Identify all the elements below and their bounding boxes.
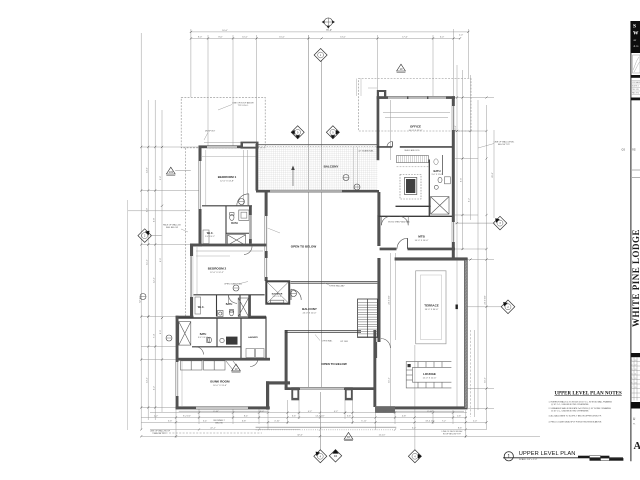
svg-text:1'-6": 1'-6" [457, 416, 462, 418]
svg-text:@ 16" O.C., UNLESS NOTED OTHER: @ 16" O.C., UNLESS NOTED OTHERWISE. [551, 404, 589, 406]
svg-text:9'-6": 9'-6" [461, 178, 463, 183]
svg-text:05: 05 [635, 387, 637, 389]
svg-text:4'-10": 4'-10" [274, 420, 280, 422]
svg-text:2'-4": 2'-4" [383, 411, 388, 413]
svg-text:5'-11": 5'-11" [361, 420, 367, 422]
svg-text:13'-0": 13'-0" [340, 36, 346, 38]
svg-text:24'-0 3/4": 24'-0 3/4" [389, 295, 391, 304]
svg-text:18'-0" X 34'-6": 18'-0" X 34'-6" [425, 309, 439, 311]
svg-text:3. ALL BALCONIES TO SLOPE 2": 3. ALL BALCONIES TO SLOPE 2" BELOW UPPER… [549, 414, 603, 417]
svg-text:W.I.C.: W.I.C. [207, 232, 214, 235]
svg-text:UPPER LEVEL PLAN NOTES: UPPER LEVEL PLAN NOTES [555, 392, 623, 397]
svg-text:OFFICE: OFFICE [410, 125, 421, 129]
svg-text:2: 2 [632, 364, 633, 366]
svg-text:BUNK ROOM: BUNK ROOM [210, 380, 230, 384]
svg-text:11'-2": 11'-2" [146, 259, 148, 265]
svg-text:13'-2": 13'-2" [146, 377, 148, 383]
svg-text:3'-6": 3'-6" [347, 416, 352, 418]
svg-text:2'-2": 2'-2" [154, 416, 159, 418]
svg-text:12'-6" X 12'-2": 12'-6" X 12'-2" [210, 272, 224, 274]
svg-text:7'-2": 7'-2" [442, 420, 447, 422]
svg-text:& co: & co [634, 45, 639, 48]
svg-text:7'-4": 7'-4" [153, 334, 155, 339]
svg-text:3: 3 [632, 369, 633, 371]
svg-text:16'-2": 16'-2" [485, 377, 487, 383]
svg-text:05: 05 [635, 360, 637, 362]
svg-text:3'-2": 3'-2" [412, 428, 417, 430]
svg-text:12'-0" X 12'-6": 12'-0" X 12'-6" [423, 377, 437, 379]
svg-text:01: 01 [635, 378, 637, 380]
svg-text:LOUNGE: LOUNGE [423, 372, 436, 376]
svg-text:17'-6": 17'-6" [402, 36, 408, 38]
svg-text:BEDROOM 1: BEDROOM 1 [218, 175, 237, 179]
svg-text:5'-4": 5'-4" [203, 420, 208, 422]
svg-text:9'-0": 9'-0" [160, 258, 162, 263]
svg-text:OPEN RAIL: OPEN RAIL [322, 340, 334, 343]
svg-text:UP 16R: UP 16R [340, 341, 348, 343]
svg-text:OPEN TO BELOW: OPEN TO BELOW [321, 362, 347, 366]
svg-text:09: 09 [635, 369, 637, 371]
svg-text:TEL 970: TEL 970 [632, 89, 639, 91]
svg-text:76'-0": 76'-0" [326, 29, 332, 32]
svg-text:07: 07 [635, 364, 637, 366]
svg-text:SCALE: 1/4" = 1'-0": SCALE: 1/4" = 1'-0" [519, 458, 537, 461]
svg-text:8'-0": 8'-0" [198, 36, 203, 38]
svg-text:6'-2": 6'-2" [469, 198, 471, 203]
svg-text:8'-4": 8'-4" [244, 416, 249, 418]
svg-text:5'-3": 5'-3" [168, 420, 173, 422]
svg-text:8'-0" X 6'-4": 8'-0" X 6'-4" [198, 337, 208, 339]
svg-text:7: 7 [632, 387, 633, 389]
svg-text:8'-10": 8'-10" [427, 411, 433, 413]
svg-text:BELOW TYP.: BELOW TYP. [154, 433, 166, 435]
svg-text:W.I.C.: W.I.C. [198, 306, 205, 309]
svg-text:10'-0" X 12'-0": 10'-0" X 12'-0" [409, 130, 423, 132]
svg-text:4'-2": 4'-2" [334, 411, 339, 413]
svg-text:16'-0": 16'-0" [222, 30, 228, 32]
svg-text:RAIL BELOW: RAIL BELOW [166, 226, 178, 229]
svg-text:32'-6": 32'-6" [297, 434, 303, 436]
svg-text:BELOW TYP.: BELOW TYP. [498, 144, 510, 146]
svg-text:@ 16" O.C., UNLESS NOTED OTHER: @ 16" O.C., UNLESS NOTED OTHERWISE. [551, 410, 589, 412]
svg-text:24'-0 3/4": 24'-0 3/4" [485, 295, 487, 304]
svg-text:2'-0": 2'-0" [260, 411, 265, 413]
svg-text:8'-0": 8'-0" [160, 330, 162, 335]
svg-text:ns: ns [632, 148, 636, 152]
svg-text:OPEN TO BELOW: OPEN TO BELOW [291, 245, 317, 249]
svg-text:OPEN GUARDRAIL: OPEN GUARDRAIL [224, 283, 243, 286]
svg-text:52'-0": 52'-0" [139, 297, 141, 303]
svg-text:14'-0" X 16'-0": 14'-0" X 16'-0" [415, 240, 429, 242]
svg-text:8'-6": 8'-6" [458, 428, 463, 430]
svg-text:6'-0": 6'-0" [146, 208, 148, 213]
svg-text:SUITE 2: SUITE 2 [632, 86, 639, 88]
svg-text:9'-2 1/2": 9'-2 1/2" [183, 416, 191, 418]
svg-text:123 MAIN: 123 MAIN [632, 81, 640, 84]
svg-text:12'-10": 12'-10" [379, 434, 386, 436]
svg-text:2'-0": 2'-0" [459, 34, 464, 36]
svg-text:TERRACE: TERRACE [424, 304, 439, 308]
svg-text:18'-4 1/2": 18'-4 1/2" [425, 420, 434, 422]
svg-text:103: 103 [169, 170, 174, 174]
svg-text:S: S [633, 24, 636, 30]
svg-text:14'-3 1/2": 14'-3 1/2" [315, 416, 324, 418]
svg-text:10'-0": 10'-0" [242, 36, 248, 38]
svg-text:BALCONY: BALCONY [324, 165, 339, 169]
svg-text:03: 03 [635, 382, 637, 384]
svg-text:UPPER LEVEL PLAN: UPPER LEVEL PLAN [519, 451, 576, 457]
svg-text:11'-0": 11'-0" [455, 125, 457, 131]
svg-text:co: co [622, 148, 626, 152]
svg-text:9'-0" X 11'-6": 9'-0" X 11'-6" [432, 174, 443, 176]
svg-text:SHELF AND ROD: SHELF AND ROD [404, 149, 420, 152]
svg-text:BATH: BATH [231, 222, 238, 225]
svg-text:12'-2": 12'-2" [153, 277, 155, 283]
svg-text:BATH: BATH [433, 169, 440, 173]
svg-text:16'-0" X 13'-6": 16'-0" X 13'-6" [213, 385, 227, 387]
svg-text:4. FIELD LOCATE IDEAL SPOT FO: 4. FIELD LOCATE IDEAL SPOT FOR AT TELEVI… [549, 420, 603, 423]
svg-text:16'-2": 16'-2" [389, 377, 391, 383]
svg-text:W: W [633, 31, 639, 37]
svg-text:6'-0": 6'-0" [440, 36, 445, 38]
svg-text:12'-6" X 13'-8": 12'-6" X 13'-8" [220, 181, 234, 183]
svg-text:6'-2": 6'-2" [153, 386, 155, 391]
svg-text:OPEN RAIL ABV: OPEN RAIL ABV [329, 285, 345, 288]
svg-text:6: 6 [632, 382, 633, 384]
svg-text:BALCONY: BALCONY [302, 307, 317, 311]
svg-text:FAX 970: FAX 970 [632, 92, 639, 95]
svg-text:A: A [634, 441, 640, 452]
svg-text:4: 4 [632, 373, 633, 375]
svg-text:5: 5 [632, 378, 633, 380]
svg-text:42" GUARDRAIL: 42" GUARDRAIL [358, 150, 374, 153]
svg-text:BATH: BATH [200, 333, 207, 336]
svg-text:24'-0" X 10'-0": 24'-0" X 10'-0" [303, 313, 317, 315]
svg-text:4'-2": 4'-2" [308, 411, 313, 413]
svg-text:D4: D4 [334, 454, 338, 458]
svg-text:22'-1": 22'-1" [210, 428, 216, 430]
svg-text:6'-10": 6'-10" [213, 411, 219, 413]
svg-text:DN SPOUT: DN SPOUT [205, 131, 216, 133]
svg-text:MTB: MTB [418, 235, 425, 239]
svg-text:5'-0" X 6'-2": 5'-0" X 6'-2" [205, 236, 215, 238]
svg-text:1: 1 [507, 454, 510, 460]
svg-text:ROOF BELOW TYP.: ROOF BELOW TYP. [443, 434, 462, 436]
svg-text:WHITE PINE LODGE: WHITE PINE LODGE [631, 229, 640, 327]
svg-text:14'-6": 14'-6" [146, 167, 148, 173]
svg-text:LAUNDRY: LAUNDRY [248, 336, 258, 339]
svg-text:8'-6": 8'-6" [218, 36, 223, 38]
svg-text:9'-8": 9'-8" [153, 218, 155, 223]
svg-text:5'-6": 5'-6" [160, 176, 162, 181]
svg-text:5'-0" X 5'-4": 5'-0" X 5'-4" [273, 296, 282, 298]
svg-text:15'-0": 15'-0" [279, 36, 285, 38]
svg-text:2'-0": 2'-0" [473, 420, 478, 422]
svg-text:1: 1 [632, 360, 633, 362]
svg-text:4'-8": 4'-8" [402, 416, 407, 418]
svg-text:BEDROOM 2: BEDROOM 2 [208, 267, 227, 271]
svg-text:11: 11 [635, 373, 637, 375]
svg-text:WOOD SHELF AND ROD: WOOD SHELF AND ROD [388, 221, 410, 224]
svg-text:6'-8": 6'-8" [242, 420, 247, 422]
svg-text:20'-6": 20'-6" [492, 172, 494, 178]
svg-text:TYP. U.N.O.: TYP. U.N.O. [238, 105, 249, 107]
svg-text:BATH: BATH [226, 303, 233, 306]
svg-text:BELOW: BELOW [215, 423, 222, 425]
svg-text:3'-6": 3'-6" [292, 416, 297, 418]
